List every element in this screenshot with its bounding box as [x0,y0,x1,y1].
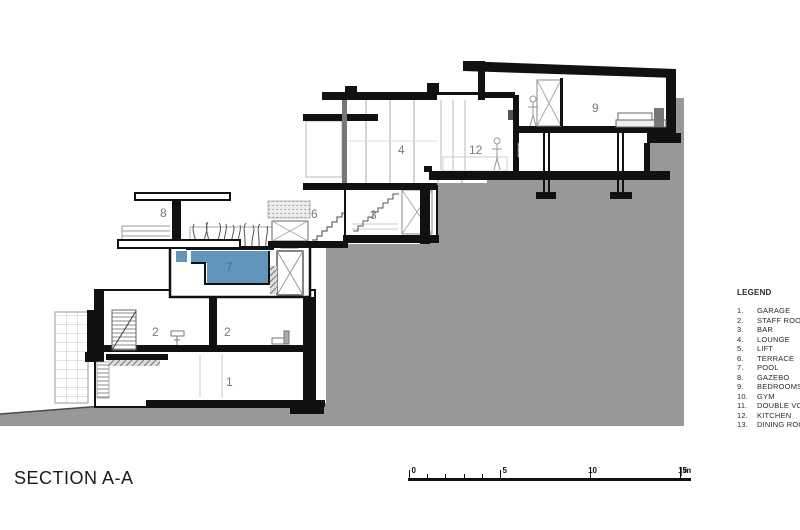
entry-canopy [106,354,168,360]
section-drawing: 87634129221 [0,0,800,530]
room-number-8: 8 [160,206,167,220]
garage-footing [290,403,324,414]
legend: LEGEND 1.GARAGE 2.STAFF ROOM 3.BAR 4.LOU… [737,288,800,430]
legend-item: 2.STAFF ROOM [737,316,800,326]
gazebo-roof [135,193,230,200]
scale-label-0: 0 [400,466,416,475]
legend-item: 5.LIFT [737,344,800,354]
scale-bar: 0 5 10 15 m [405,462,695,482]
canopy-louvres [108,360,160,366]
scale-unit-divider [681,467,682,476]
legend-item: 1.GARAGE [737,306,800,316]
legend-heading: LEGEND [737,288,800,297]
drawing-title: SECTION A-A [14,468,134,489]
lounge-column [342,100,347,183]
scale-tick-minor [482,474,483,479]
terrace-screed [268,201,310,218]
gazebo [118,193,240,248]
room-number-2: 2 [152,325,159,339]
legend-item: 13.DINING ROOM [737,420,800,430]
legend-item: 10.GYM [737,392,800,402]
lower-block [95,290,325,414]
lounge-floor-slab [303,183,437,190]
scale-unit: m [684,466,691,475]
legend-item: 7.POOL [737,363,800,373]
wall-footing [647,133,681,143]
section-sheet: { "title": "SECTION A-A", "legend": { "h… [0,0,800,530]
right-wall [303,297,315,403]
room-number-7: 7 [226,260,233,274]
terrace-slab [268,241,348,248]
interior-wall [209,298,217,345]
scale-label-5: 5 [491,466,507,475]
room-number-4: 4 [398,143,405,157]
legend-item: 6.TERRACE [737,354,800,364]
canopy-slab [303,114,378,121]
legend-list: 1.GARAGE 2.STAFF ROOM 3.BAR 4.LOUNGE 5.L… [737,306,800,430]
kitchen-ceiling-slab [485,92,515,98]
legend-item: 12.KITCHEN [737,411,800,421]
room-number-6: 6 [311,207,318,221]
gym-room [519,133,648,171]
room-number-2: 2 [224,325,231,339]
legend-item: 4.LOUNGE [737,335,800,345]
upper-roof [463,61,676,78]
scale-label-10: 10 [581,466,597,475]
room-number-12: 12 [469,143,483,157]
legend-item: 8.GAZEBO [737,373,800,383]
gazebo-deck [118,240,240,248]
room-number-9: 9 [592,101,599,115]
rooflight [427,83,439,92]
scale-tick-minor [445,474,446,479]
scale-tick-minor [427,474,428,479]
legend-item: 3.BAR [737,325,800,335]
scale-bar-line [408,478,691,481]
scale-tick-minor [464,474,465,479]
terrace [268,201,348,248]
room-number-3: 3 [370,208,377,222]
rooflight [345,86,357,93]
legend-item: 9.BEDROOMS [737,382,800,392]
room-number-1: 1 [226,375,233,389]
bedroom-right-wall [666,71,676,135]
pool-scupper [176,251,187,262]
legend-item: 11.DOUBLE VOLUME [737,401,800,411]
gazebo-railing [122,226,170,240]
